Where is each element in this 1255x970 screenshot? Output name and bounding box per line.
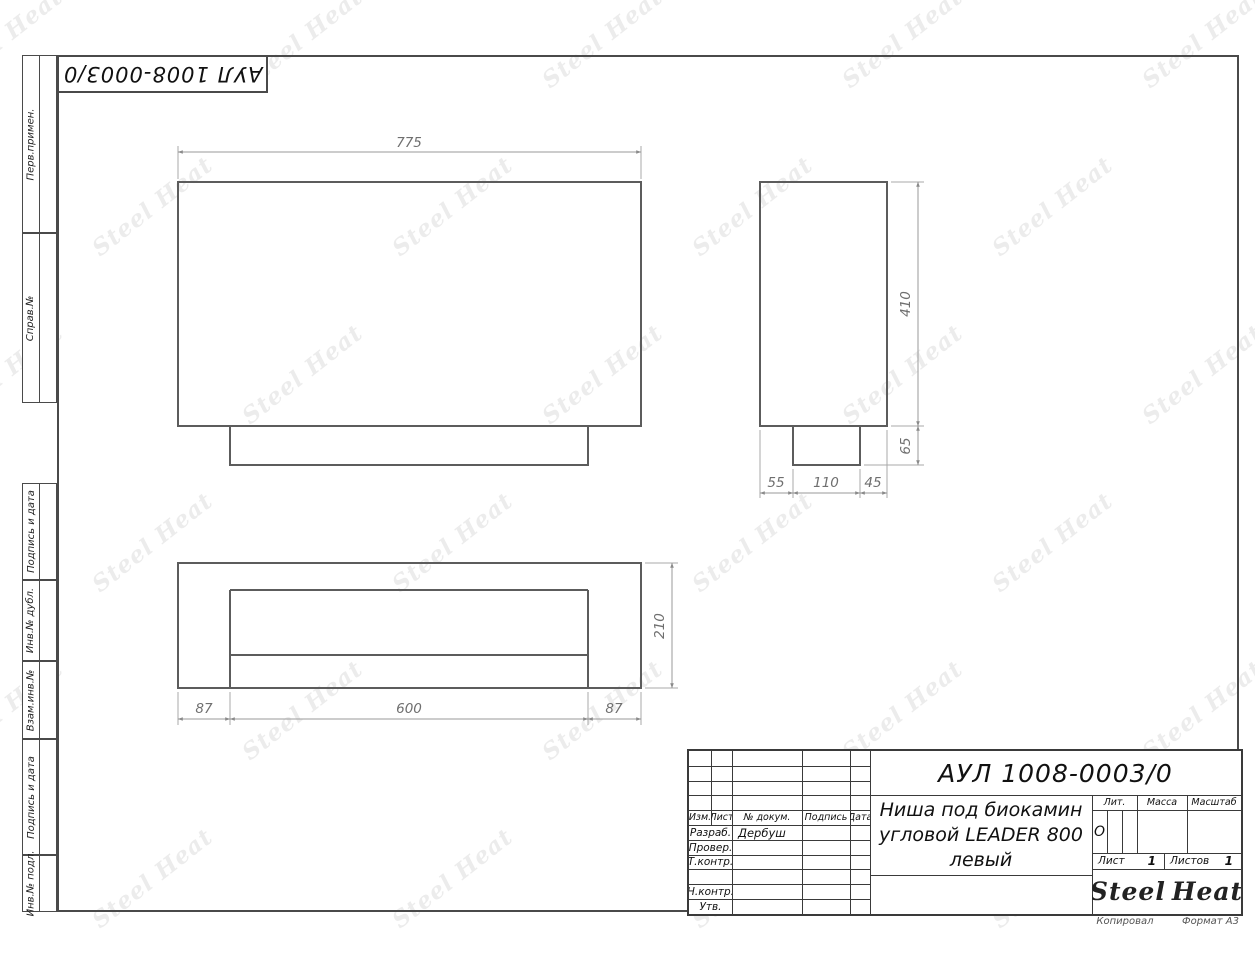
front-view-base-outline [230,426,588,465]
sidebar-label-cell: Перв.примен. [23,56,40,232]
sidebar-cell-podpis-data-2: Подпись и дата [22,739,57,855]
sidebar-label-cell: Инв.№ подл. [23,856,40,911]
grid-line [689,795,870,796]
dim-65-label: 65 [898,437,914,454]
dim-87-right-label: 87 [605,701,623,717]
col-header-podpis: Подпись [802,810,850,825]
row-label-utv: Утв. [689,899,732,914]
list-value: 1 [1148,854,1156,868]
side-view-base-outline [793,426,860,465]
plan-view-outline [178,563,641,688]
part-name-line2: угловой LEADER 800 [879,823,1083,848]
company-logo: Steel Heat [1092,869,1241,914]
part-name-line1: Ниша под биокамин [880,798,1083,823]
footer-format: Формат А3 [1175,916,1239,927]
logo-text-steel: Steel [1092,877,1166,906]
grid-line [689,766,870,767]
grid-line [802,751,803,914]
sidebar-label: Справ.№ [26,295,37,340]
sidebar-cell-inv-podl: Инв.№ подл. [22,855,57,912]
top-doc-number-stamp: АУЛ 1008-0003/0 [57,55,268,93]
sidebar-label: Инв.№ дубл. [26,588,37,653]
listov-value: 1 [1225,854,1233,868]
sidebar-cell-sprav-no: Справ.№ [22,233,57,403]
dim-87-left-label: 87 [195,701,213,717]
list-label: Лист [1098,855,1125,867]
sidebar-cell-vzam-inv: Взам.инв.№ [22,661,57,739]
footer-kopiroval: Копировал [1080,916,1170,927]
dim-55-label: 55 [767,475,784,491]
grid-line [689,869,870,870]
side-view-body-outline [760,182,887,426]
row-label-tkontr: Т.контр. [689,855,732,869]
row-value-razrab: Дербуш [732,825,802,840]
part-name: Ниша под биокамин угловой LEADER 800 лев… [870,795,1092,875]
title-block: Изм. Лист № докум. Подпись Дата Разраб. … [687,749,1243,916]
sidebar-label-cell: Справ.№ [23,234,40,402]
sidebar-cell-podpis-data-1: Подпись и дата [22,483,57,580]
lit-header: Лит. [1092,795,1137,810]
row-label-prover: Провер. [689,840,732,855]
sidebar-label: Подпись и дата [26,756,37,839]
col-header-izm: Изм. [689,810,711,825]
sidebar-cell-perv-primen: Перв.примен. [22,55,57,233]
dim-600-label: 600 [396,701,422,717]
grid-line [689,781,870,782]
dim-410-label: 410 [898,291,914,317]
col-header-data: Дата [850,810,870,825]
row-label-razrab: Разраб. [689,825,732,840]
row-label-nkontr: Н.контр. [689,884,732,899]
grid-line [1107,810,1108,853]
massa-header: Масса [1137,795,1187,810]
listov-label: Листов [1170,855,1209,867]
list-cell: Лист 1 [1092,853,1164,869]
grid-line [1092,810,1241,811]
part-name-line3: левый [950,848,1012,873]
sidebar-label-cell: Подпись и дата [23,484,40,579]
col-header-docnum: № докум. [732,810,802,825]
dim-775-label: 775 [396,135,422,151]
logo-text-heat: Heat [1172,877,1241,906]
sidebar-label-cell: Инв.№ дубл. [23,581,40,660]
titleblock-doc-number: АУЛ 1008-0003/0 [870,751,1241,795]
lit-value: О [1092,810,1107,853]
listov-cell: Листов 1 [1164,853,1241,869]
sidebar-cell-inv-dubl: Инв.№ дубл. [22,580,57,661]
sidebar-label: Перв.примен. [26,108,37,180]
sidebar-label-cell: Взам.инв.№ [23,662,40,738]
sidebar-label: Подпись и дата [26,490,37,573]
sidebar-label: Инв.№ подл. [26,851,37,917]
sidebar-label: Взам.инв.№ [26,669,37,731]
col-header-list: Лист [711,810,732,825]
masshtab-header: Масштаб [1187,795,1241,810]
sidebar-label-cell: Подпись и дата [23,740,40,854]
top-doc-number-text: АУЛ 1008-0003/0 [63,62,263,86]
grid-line [870,875,1092,876]
dim-45-label: 45 [864,475,881,491]
grid-line [1122,810,1123,853]
dim-210-label: 210 [652,613,668,639]
front-view-body-outline [178,182,641,426]
grid-line [850,751,851,914]
dim-110-label: 110 [813,475,839,491]
